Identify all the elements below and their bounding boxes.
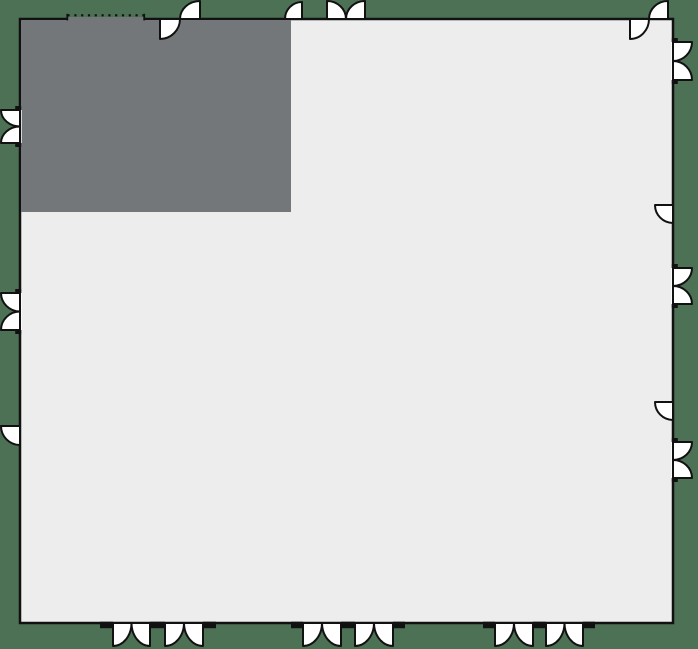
room-dark	[21, 20, 291, 212]
dotted-opening-floor	[67, 17, 146, 22]
floor-plan-svg	[0, 0, 698, 649]
bottom-jamb-stub-2	[203, 622, 216, 629]
bottom-jamb-stub-6	[483, 622, 495, 629]
bottom-jamb-stub-1	[150, 622, 165, 629]
bottom-jamb-stub-0	[100, 622, 113, 629]
bottom-jamb-stub-7	[533, 622, 546, 629]
floor-plan-canvas	[0, 0, 698, 649]
bottom-jamb-stub-8	[583, 622, 595, 629]
bottom-jamb-stub-3	[291, 622, 303, 629]
bottom-jamb-stub-4	[341, 622, 355, 629]
bottom-jamb-stub-5	[393, 622, 405, 629]
